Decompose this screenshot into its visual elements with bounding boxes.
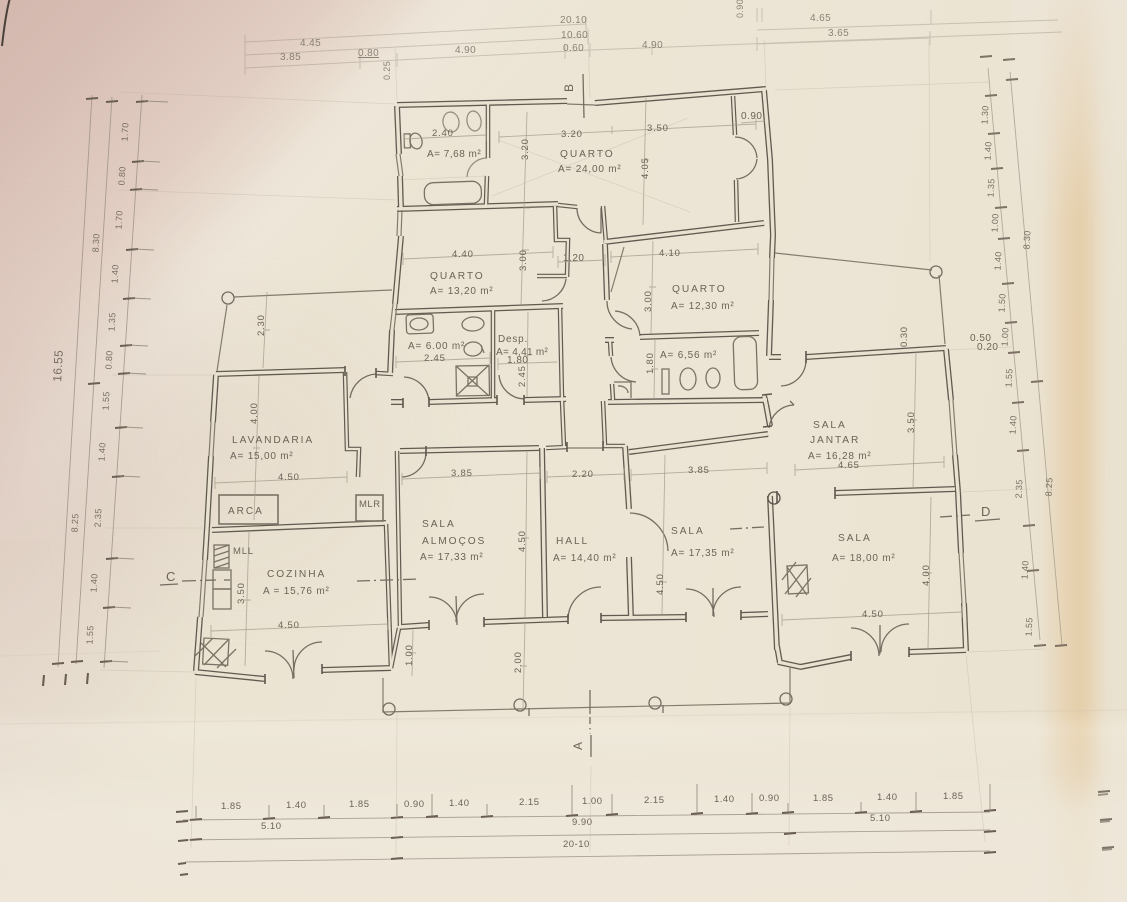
svg-text:4.50: 4.50 bbox=[517, 530, 528, 552]
svg-text:JANTAR: JANTAR bbox=[810, 435, 860, 446]
svg-text:A= 18,00 m²: A= 18,00 m² bbox=[832, 553, 896, 564]
svg-text:1.40: 1.40 bbox=[97, 442, 108, 462]
svg-text:0.60: 0.60 bbox=[563, 43, 584, 54]
svg-text:1.40: 1.40 bbox=[714, 794, 735, 805]
svg-text:20.10: 20.10 bbox=[560, 15, 587, 26]
svg-text:1.35: 1.35 bbox=[986, 178, 997, 198]
svg-text:0.80: 0.80 bbox=[117, 166, 128, 186]
svg-text:0.90: 0.90 bbox=[404, 799, 425, 810]
svg-text:3.00: 3.00 bbox=[643, 290, 654, 312]
svg-text:2.15: 2.15 bbox=[519, 797, 540, 808]
svg-text:1.40: 1.40 bbox=[110, 264, 121, 284]
svg-text:2.20: 2.20 bbox=[572, 469, 594, 480]
svg-text:1.00: 1.00 bbox=[404, 644, 415, 666]
svg-text:8.25: 8.25 bbox=[70, 513, 81, 533]
svg-text:1.40: 1.40 bbox=[1008, 415, 1019, 435]
svg-text:3.65: 3.65 bbox=[828, 28, 849, 39]
svg-text:MLL: MLL bbox=[233, 546, 254, 557]
svg-text:1.40: 1.40 bbox=[89, 573, 100, 593]
svg-text:Desp.: Desp. bbox=[498, 334, 528, 345]
svg-text:1.40: 1.40 bbox=[1020, 560, 1031, 580]
svg-text:8.25: 8.25 bbox=[1044, 477, 1055, 497]
svg-text:2.00: 2.00 bbox=[513, 651, 524, 673]
svg-text:HALL: HALL bbox=[556, 536, 589, 547]
svg-text:1.55: 1.55 bbox=[101, 391, 112, 411]
svg-text:4.50: 4.50 bbox=[655, 573, 666, 595]
svg-text:1.30: 1.30 bbox=[980, 105, 991, 125]
svg-text:4.45: 4.45 bbox=[300, 38, 321, 49]
svg-text:1.50: 1.50 bbox=[997, 293, 1008, 313]
svg-text:A= 24,00 m²: A= 24,00 m² bbox=[558, 164, 622, 175]
svg-text:1.00: 1.00 bbox=[582, 796, 603, 807]
svg-text:4.40: 4.40 bbox=[452, 249, 474, 260]
svg-text:1.55: 1.55 bbox=[85, 625, 96, 645]
svg-text:SALA: SALA bbox=[671, 526, 705, 537]
svg-text:9.90: 9.90 bbox=[572, 817, 593, 828]
svg-text:3.50: 3.50 bbox=[906, 411, 917, 433]
svg-text:4.00: 4.00 bbox=[249, 402, 260, 424]
svg-text:4.00: 4.00 bbox=[921, 564, 932, 586]
svg-text:B: B bbox=[562, 84, 576, 92]
svg-text:3.20: 3.20 bbox=[520, 138, 531, 160]
svg-text:0.90: 0.90 bbox=[735, 0, 745, 18]
svg-text:1.40: 1.40 bbox=[449, 798, 470, 809]
svg-text:1.85: 1.85 bbox=[349, 799, 370, 810]
svg-text:2.15: 2.15 bbox=[644, 795, 665, 806]
svg-text:5.10: 5.10 bbox=[261, 821, 282, 832]
svg-text:1.80: 1.80 bbox=[645, 352, 656, 374]
svg-text:1.40: 1.40 bbox=[286, 800, 307, 811]
svg-text:SALA: SALA bbox=[813, 420, 847, 431]
svg-text:C: C bbox=[166, 569, 175, 584]
svg-text:COZINHA: COZINHA bbox=[267, 569, 326, 580]
svg-text:3.85: 3.85 bbox=[280, 52, 301, 63]
svg-text:4.65: 4.65 bbox=[810, 13, 831, 24]
svg-text:4.50: 4.50 bbox=[278, 620, 300, 631]
svg-text:A= 6.00 m²: A= 6.00 m² bbox=[408, 341, 465, 352]
svg-text:1.40: 1.40 bbox=[983, 141, 994, 161]
svg-text:1.80: 1.80 bbox=[507, 355, 528, 366]
svg-text:A= 12,30 m²: A= 12,30 m² bbox=[671, 301, 735, 312]
svg-text:A= 14,40 m²: A= 14,40 m² bbox=[553, 553, 617, 564]
svg-text:0.80: 0.80 bbox=[358, 48, 379, 59]
svg-text:1.00: 1.00 bbox=[990, 213, 1001, 233]
svg-text:QUARTO: QUARTO bbox=[430, 271, 485, 282]
svg-text:1.55: 1.55 bbox=[1004, 368, 1015, 388]
svg-text:QUARTO: QUARTO bbox=[672, 284, 727, 295]
svg-text:8.30: 8.30 bbox=[1022, 230, 1033, 250]
svg-text:SALA: SALA bbox=[838, 533, 872, 544]
svg-text:QUARTO: QUARTO bbox=[560, 149, 615, 160]
svg-text:ARCA: ARCA bbox=[228, 506, 264, 517]
svg-text:2.35: 2.35 bbox=[93, 508, 104, 528]
svg-text:5.10: 5.10 bbox=[870, 813, 891, 824]
svg-text:1.35: 1.35 bbox=[107, 312, 118, 332]
svg-text:SALA: SALA bbox=[422, 519, 456, 530]
svg-text:0.25: 0.25 bbox=[382, 61, 392, 80]
svg-text:4.05: 4.05 bbox=[640, 157, 651, 179]
svg-text:3.20: 3.20 bbox=[561, 129, 583, 140]
svg-text:1.40: 1.40 bbox=[993, 251, 1004, 271]
svg-text:0.90: 0.90 bbox=[741, 111, 762, 122]
svg-text:A= 7,68 m²: A= 7,68 m² bbox=[427, 149, 481, 160]
svg-text:2.40: 2.40 bbox=[432, 128, 454, 139]
svg-text:2.35: 2.35 bbox=[1014, 479, 1025, 499]
svg-text:A = 15,76 m²: A = 15,76 m² bbox=[263, 586, 330, 597]
svg-text:3.85: 3.85 bbox=[451, 468, 473, 479]
svg-text:8.30: 8.30 bbox=[91, 233, 102, 253]
svg-text:2.45: 2.45 bbox=[424, 353, 446, 364]
svg-text:1.00: 1.00 bbox=[1000, 327, 1011, 347]
svg-text:1.70: 1.70 bbox=[114, 210, 125, 230]
svg-text:20-10: 20-10 bbox=[563, 839, 590, 850]
svg-text:10.60: 10.60 bbox=[561, 30, 588, 41]
svg-text:4.10: 4.10 bbox=[659, 248, 681, 259]
svg-text:LAVANDARIA: LAVANDARIA bbox=[232, 435, 314, 446]
svg-text:A= 17,35 m²: A= 17,35 m² bbox=[671, 548, 735, 559]
svg-text:4.90: 4.90 bbox=[642, 40, 663, 51]
svg-text:1.40: 1.40 bbox=[877, 792, 898, 803]
svg-text:D: D bbox=[981, 504, 990, 519]
svg-text:1.85: 1.85 bbox=[943, 791, 964, 802]
svg-text:MLR: MLR bbox=[359, 499, 381, 510]
svg-text:0.80: 0.80 bbox=[104, 350, 115, 370]
svg-text:4.50: 4.50 bbox=[862, 609, 884, 620]
svg-text:3.50: 3.50 bbox=[236, 582, 247, 604]
svg-text:3.00: 3.00 bbox=[518, 249, 529, 271]
svg-text:ALMOÇOS: ALMOÇOS bbox=[422, 536, 486, 547]
svg-text:1.20: 1.20 bbox=[563, 253, 584, 264]
svg-text:A= 15,00 m²: A= 15,00 m² bbox=[230, 451, 294, 462]
svg-text:2.45: 2.45 bbox=[517, 365, 528, 387]
svg-text:3.50: 3.50 bbox=[647, 123, 669, 134]
svg-text:16.55: 16.55 bbox=[50, 349, 66, 382]
svg-text:A= 13,20 m²: A= 13,20 m² bbox=[430, 286, 494, 297]
svg-text:4.50: 4.50 bbox=[278, 472, 300, 483]
svg-text:4.65: 4.65 bbox=[838, 460, 860, 471]
svg-text:A= 17,33 m²: A= 17,33 m² bbox=[420, 552, 484, 563]
svg-text:1.70: 1.70 bbox=[120, 122, 131, 142]
svg-text:0.30: 0.30 bbox=[899, 327, 910, 348]
svg-text:A= 6,56 m²: A= 6,56 m² bbox=[660, 350, 717, 361]
svg-text:3.85: 3.85 bbox=[688, 465, 710, 476]
svg-text:0.90: 0.90 bbox=[759, 793, 780, 804]
svg-text:4.90: 4.90 bbox=[455, 45, 476, 56]
svg-text:2.30: 2.30 bbox=[256, 314, 267, 336]
svg-text:1.85: 1.85 bbox=[813, 793, 834, 804]
svg-text:1.55: 1.55 bbox=[1024, 617, 1035, 637]
svg-text:A: A bbox=[571, 742, 585, 750]
svg-text:1.85: 1.85 bbox=[221, 801, 242, 812]
